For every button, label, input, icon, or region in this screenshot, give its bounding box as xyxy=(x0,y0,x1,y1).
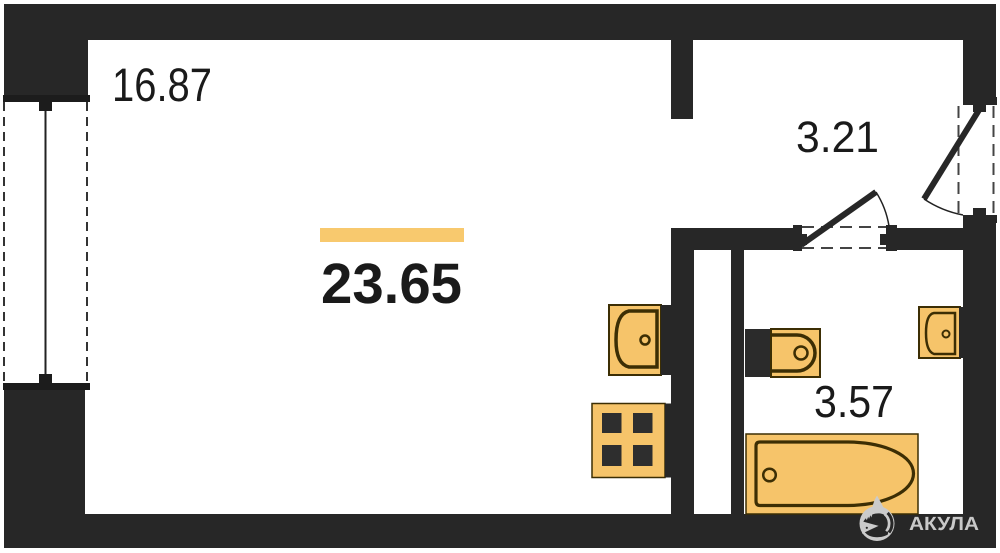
svg-text:3.57: 3.57 xyxy=(814,376,894,427)
svg-text:16.87: 16.87 xyxy=(112,58,212,111)
svg-text:23.65: 23.65 xyxy=(321,252,462,316)
svg-text:АКУЛА: АКУЛА xyxy=(909,514,979,535)
svg-text:3.21: 3.21 xyxy=(796,113,879,162)
